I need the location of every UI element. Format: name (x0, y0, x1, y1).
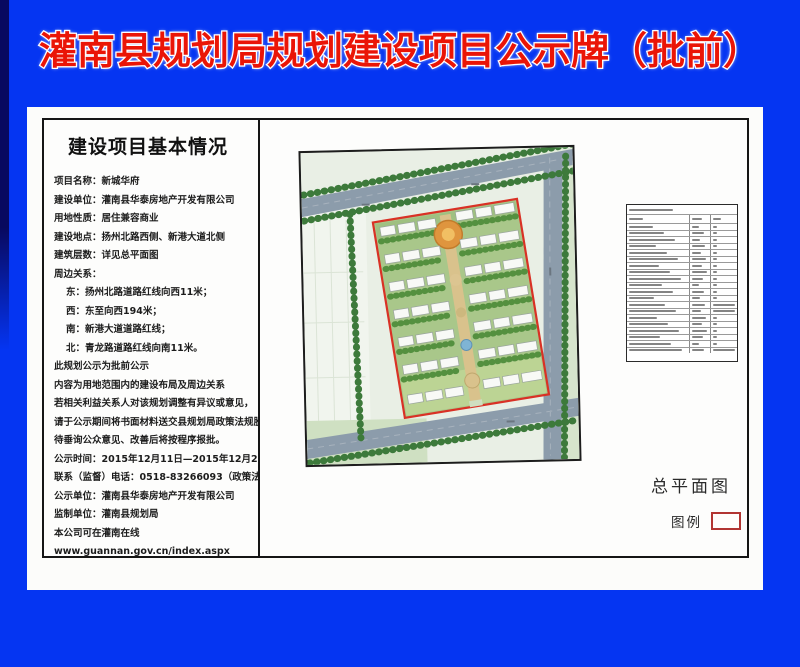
info-lines: 项目名称：新城华府建设单位：灌南县华泰房地产开发有限公司用地性质：居住兼容商业建… (54, 173, 258, 556)
info-line: 请于公示期间将书面材料送交县规划局政策法规股 (54, 414, 258, 433)
legend-label: 图例 (671, 511, 702, 531)
indicator-row (627, 347, 737, 354)
info-line: 西：东至向西194米； (54, 303, 258, 322)
info-line: 建设地点：扬州北路西侧、新港大道北侧 (54, 229, 258, 248)
info-line: 待垂询公众意见、改善后将按程序报批。 (54, 432, 258, 451)
indicator-row (627, 205, 737, 214)
board-title: 灌南县规划局规划建设项目公示牌（批前） (0, 20, 800, 75)
info-line: 建筑层数：详见总平面图 (54, 247, 258, 266)
info-line: 本公司可在灌南在线 (54, 525, 258, 544)
indicators-table (626, 204, 738, 362)
info-line: 周边关系： (54, 266, 258, 285)
info-line: 北：青龙路道路红线向南11米。 (54, 340, 258, 359)
parcel (373, 199, 549, 418)
info-line: 若相关利益关系人对该规划调整有异议或意见， (54, 395, 258, 414)
site-plan-map (300, 147, 579, 465)
info-line: www.guannan.gov.cn/index.aspx (54, 543, 258, 556)
site-plan-photo (298, 145, 581, 467)
site-plan-section: 总平面图 图例 (260, 120, 747, 556)
info-line: 内容为用地范围内的建设布局及周边关系 (54, 377, 258, 396)
info-line: 建设单位：灌南县华泰房地产开发有限公司 (54, 192, 258, 211)
plan-caption: 总平面图 (651, 472, 731, 497)
info-line: 南：新港大道道路红线； (54, 321, 258, 340)
info-line: 项目名称：新城华府 (54, 173, 258, 192)
info-line: 此规划公示为批前公示 (54, 358, 258, 377)
legend-swatch (711, 512, 741, 530)
info-line: 监制单位：灌南县规划局 (54, 506, 258, 525)
legend: 图例 (671, 511, 741, 531)
info-line: 联系（监督）电话：0518-83266093（政策法规股） (54, 469, 258, 488)
indicator-row (627, 214, 737, 223)
inner-frame: 建设项目基本情况 项目名称：新城华府建设单位：灌南县华泰房地产开发有限公司用地性… (42, 118, 749, 558)
info-line: 用地性质：居住兼容商业 (54, 210, 258, 229)
section-heading: 建设项目基本情况 (68, 132, 258, 159)
project-info-section: 建设项目基本情况 项目名称：新城华府建设单位：灌南县华泰房地产开发有限公司用地性… (44, 120, 258, 556)
info-line: 公示时间：2015年12月11日—2015年12月20日 (54, 451, 258, 470)
info-line: 公示单位：灌南县华泰房地产开发有限公司 (54, 488, 258, 507)
info-line: 东：扬州北路道路红线向西11米； (54, 284, 258, 303)
content-panel: 建设项目基本情况 项目名称：新城华府建设单位：灌南县华泰房地产开发有限公司用地性… (27, 107, 763, 590)
